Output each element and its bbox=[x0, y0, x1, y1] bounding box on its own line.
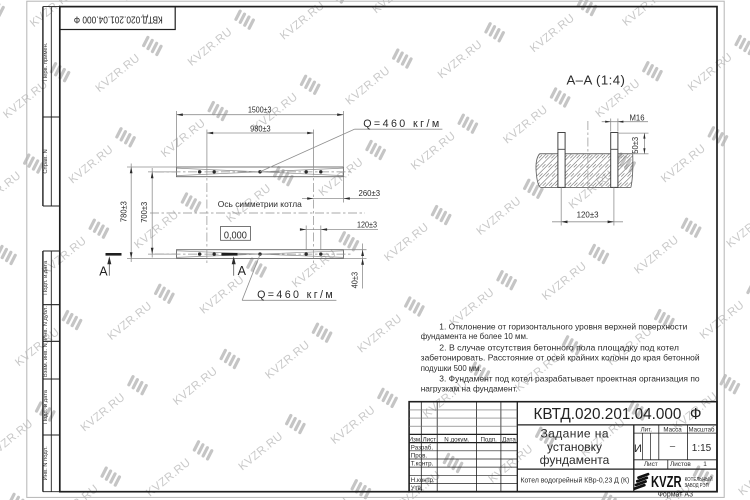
svg-text:Н.контр.: Н.контр. bbox=[411, 477, 435, 484]
svg-text:фундамента не более 10 мм.: фундамента не более 10 мм. bbox=[421, 331, 528, 341]
svg-text:фундамента: фундамента bbox=[540, 453, 610, 467]
svg-text:KVZR.RU: KVZR.RU bbox=[94, 52, 143, 95]
svg-text:Лист: Лист bbox=[644, 461, 658, 468]
svg-text:Подп. и дата: Подп. и дата bbox=[43, 389, 49, 424]
svg-text:Масштаб: Масштаб bbox=[689, 427, 715, 434]
svg-text:N докум.: N докум. bbox=[444, 436, 469, 443]
svg-text:KVZR.RU: KVZR.RU bbox=[13, 326, 62, 369]
svg-text:KVZR.RU: KVZR.RU bbox=[409, 130, 458, 173]
svg-text:A–A (1:4): A–A (1:4) bbox=[566, 73, 625, 88]
svg-text:Q=460 кг/м: Q=460 кг/м bbox=[257, 289, 333, 301]
svg-text:KVZR.RU: KVZR.RU bbox=[540, 260, 589, 303]
svg-text:1:15: 1:15 bbox=[692, 443, 712, 454]
svg-text:KVZR.RU: KVZR.RU bbox=[198, 274, 247, 317]
svg-text:КВТД.020.201.04.000 Ф: КВТД.020.201.04.000 Ф bbox=[534, 406, 702, 423]
svg-text:Инв. N дубл.: Инв. N дубл. bbox=[43, 306, 49, 340]
svg-text:Пров.: Пров. bbox=[411, 453, 428, 460]
svg-text:ЗАВОД РЭП: ЗАВОД РЭП bbox=[685, 483, 709, 489]
svg-text:КВТД.020.201.04.000 Ф: КВТД.020.201.04.000 Ф bbox=[74, 13, 163, 25]
svg-text:КОТЕЛЬНЫЙ: КОТЕЛЬНЫЙ bbox=[685, 475, 713, 483]
svg-text:Разраб.: Разраб. bbox=[411, 444, 434, 451]
svg-text:KVZR.RU: KVZR.RU bbox=[79, 391, 128, 434]
svg-text:2. В случае отсутствия бетонно: 2. В случае отсутствия бетонного пола пл… bbox=[439, 342, 679, 352]
svg-text:KVZR.RU: KVZR.RU bbox=[382, 221, 431, 264]
svg-text:A: A bbox=[99, 265, 108, 279]
svg-text:KVZR.RU: KVZR.RU bbox=[501, 104, 550, 147]
svg-text:KVZR.RU: KVZR.RU bbox=[171, 365, 220, 408]
svg-text:780±3: 780±3 bbox=[118, 201, 128, 222]
svg-text:установку: установку bbox=[547, 440, 602, 454]
svg-text:Лист: Лист bbox=[423, 436, 437, 443]
svg-text:Т.контр.: Т.контр. bbox=[411, 461, 434, 468]
svg-text:120±3: 120±3 bbox=[357, 219, 377, 229]
svg-text:KVZR.RU: KVZR.RU bbox=[329, 404, 378, 447]
svg-text:KVZR.RU: KVZR.RU bbox=[370, 0, 419, 16]
svg-text:KVZR.RU: KVZR.RU bbox=[0, 170, 23, 213]
svg-text:120±3: 120±3 bbox=[577, 209, 599, 219]
svg-text:KVZR.RU: KVZR.RU bbox=[0, 418, 35, 461]
svg-text:Масса: Масса bbox=[663, 427, 682, 434]
svg-text:KVZR.RU: KVZR.RU bbox=[186, 26, 235, 69]
svg-text:3. Фундамент под котел разраба: 3. Фундамент под котел разрабатывает про… bbox=[439, 373, 700, 383]
svg-text:Котел водогрейный КВр-0,23 Д (: Котел водогрейный КВр-0,23 Д (К) bbox=[521, 476, 630, 485]
svg-text:Формат А3: Формат А3 bbox=[658, 492, 693, 499]
svg-text:700±3: 700±3 bbox=[139, 202, 149, 223]
svg-text:Подп.: Подп. bbox=[480, 436, 497, 443]
svg-text:KVZR.RU: KVZR.RU bbox=[528, 12, 577, 55]
svg-text:KVZR.RU: KVZR.RU bbox=[698, 299, 747, 342]
svg-text:KVZR.RU: KVZR.RU bbox=[436, 38, 485, 81]
svg-text:40±3: 40±3 bbox=[350, 272, 360, 289]
svg-text:–: – bbox=[670, 441, 676, 452]
svg-text:подушки 500 мм.: подушки 500 мм. bbox=[421, 363, 482, 373]
svg-text:KVZR.RU: KVZR.RU bbox=[67, 143, 116, 186]
svg-text:KVZR.RU: KVZR.RU bbox=[28, 0, 77, 30]
svg-text:Взам. инв. N: Взам. инв. N bbox=[43, 343, 49, 377]
svg-text:KVZR.RU: KVZR.RU bbox=[632, 234, 681, 277]
svg-text:Дата: Дата bbox=[502, 436, 516, 443]
svg-text:0,000: 0,000 bbox=[224, 229, 247, 241]
svg-text:KVZR.RU: KVZR.RU bbox=[475, 195, 524, 238]
svg-text:1. Отклонение от горизонтально: 1. Отклонение от горизонтального уровня … bbox=[439, 321, 687, 331]
svg-text:KVZR: KVZR bbox=[651, 474, 682, 491]
svg-text:KVZR.RU: KVZR.RU bbox=[159, 117, 208, 160]
svg-text:KVZR.RU: KVZR.RU bbox=[686, 51, 735, 94]
svg-text:забетонировать. Расстояние от: забетонировать. Расстояние от осей крайн… bbox=[421, 353, 700, 363]
svg-text:Лит.: Лит. bbox=[641, 427, 653, 434]
svg-text:Перв. примен.: Перв. примен. bbox=[43, 42, 49, 81]
svg-text:нагрузкам на фундамент.: нагрузкам на фундамент. bbox=[421, 384, 518, 394]
svg-text:Инв. N подл.: Инв. N подл. bbox=[43, 446, 49, 480]
svg-text:KVZR.RU: KVZR.RU bbox=[356, 313, 405, 356]
svg-text:50±3: 50±3 bbox=[630, 137, 640, 154]
svg-text:KVZR.RU: KVZR.RU bbox=[263, 339, 312, 382]
svg-text:Изм.: Изм. bbox=[409, 436, 423, 443]
svg-text:KVZR.RU: KVZR.RU bbox=[725, 208, 750, 251]
svg-text:Задание на: Задание на bbox=[541, 426, 609, 440]
svg-text:И: И bbox=[634, 443, 642, 455]
svg-text:A: A bbox=[238, 264, 247, 278]
svg-text:1: 1 bbox=[703, 461, 707, 468]
svg-text:M16: M16 bbox=[630, 113, 645, 122]
svg-text:Q=460 кг/м: Q=460 кг/м bbox=[363, 118, 439, 130]
svg-text:KVZR.RU: KVZR.RU bbox=[659, 142, 708, 185]
svg-text:KVZR.RU: KVZR.RU bbox=[737, 455, 750, 498]
svg-text:KVZR.RU: KVZR.RU bbox=[144, 456, 193, 499]
svg-text:KVZR.RU: KVZR.RU bbox=[106, 300, 155, 343]
svg-text:260±3: 260±3 bbox=[359, 188, 381, 198]
svg-text:KVZR.RU: KVZR.RU bbox=[120, 0, 169, 4]
svg-text:1500±3: 1500±3 bbox=[248, 105, 272, 115]
svg-text:KVZR.RU: KVZR.RU bbox=[237, 430, 286, 473]
svg-text:Подп. и дата: Подп. и дата bbox=[43, 260, 49, 295]
svg-text:KVZR.RU: KVZR.RU bbox=[344, 65, 393, 108]
svg-text:Ось симметрии котла: Ось симметрии котла bbox=[218, 199, 302, 209]
svg-text:Листов: Листов bbox=[670, 461, 691, 468]
svg-text:980±3: 980±3 bbox=[250, 123, 271, 133]
svg-text:Утв.: Утв. bbox=[411, 485, 423, 492]
svg-text:KVZR.RU: KVZR.RU bbox=[620, 0, 669, 29]
svg-text:Справ. N: Справ. N bbox=[43, 149, 49, 173]
